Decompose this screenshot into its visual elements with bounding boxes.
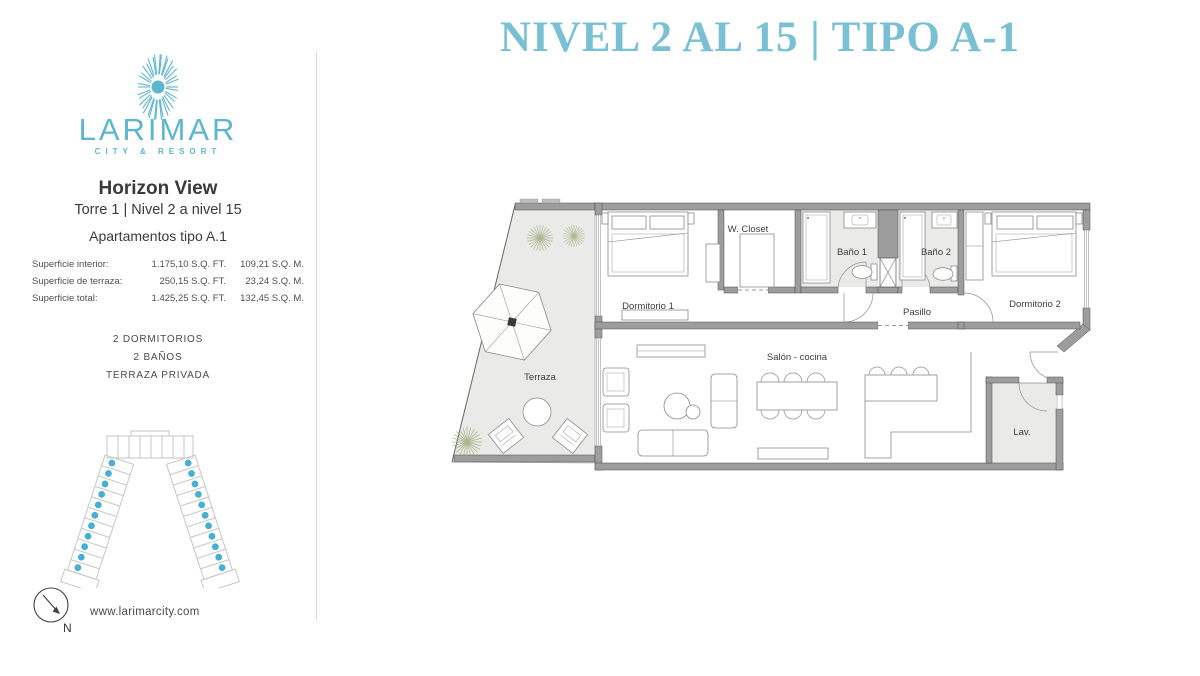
side-table-icon: [686, 405, 700, 419]
tower-levels: Torre 1 | Nivel 2 a nivel 15: [0, 202, 316, 218]
sink-icon: [932, 212, 957, 228]
area-label: Superficie interior:: [32, 259, 134, 270]
label-wcloset: W. Closet: [728, 224, 769, 235]
bridge-notch: [131, 431, 169, 436]
area-sqft: 250,15 S.Q. FT.: [134, 276, 226, 287]
armchair-icon: [603, 368, 629, 396]
unit-dots: [74, 459, 117, 572]
feature-bathrooms: 2 BAÑOS: [0, 349, 316, 367]
panel-divider: [316, 52, 317, 620]
pillow-icon: [997, 216, 1033, 229]
wcloset-furniture: [740, 234, 774, 287]
sofa-icon: [711, 374, 737, 428]
area-table: Superficie interior: 1.175,10 S.Q. FT. 1…: [32, 256, 304, 307]
label-pasillo: Pasillo: [903, 307, 931, 318]
nightstand-icon: [1076, 213, 1082, 224]
dining-table-icon: [757, 373, 837, 419]
kitchen-island-icon: [865, 367, 937, 401]
apartment-type: Apartamentos tipo A.1: [0, 228, 316, 244]
lav-floor: [992, 383, 1056, 463]
nightstand-icon: [688, 213, 694, 224]
area-sqft: 1.425,25 S.Q. FT.: [134, 293, 226, 304]
armchair-icon: [603, 404, 629, 432]
nightstand-icon: [985, 213, 991, 224]
page-title: NIVEL 2 AL 15 | TIPO A-1: [330, 13, 1190, 62]
plant-icon: [527, 225, 553, 251]
terrace: [452, 199, 595, 463]
feature-terrace: TERRAZA PRIVADA: [0, 367, 316, 385]
area-row-total: Superficie total: 1.425,25 S.Q. FT. 132,…: [32, 290, 304, 307]
wardrobe-icon: [740, 234, 774, 287]
label-dormitorio2: Dormitorio 2: [1009, 299, 1061, 310]
sun-center: [152, 81, 165, 94]
plant-icon: [563, 225, 585, 247]
area-row-terraza: Superficie de terraza: 250,15 S.Q. FT. 2…: [32, 273, 304, 290]
brochure-page: NIVEL 2 AL 15 | TIPO A-1: [0, 0, 1200, 676]
right-wing: [164, 454, 240, 588]
area-sqm: 23,24 S.Q. M.: [226, 276, 304, 287]
dormitorio2-furniture: [966, 212, 1082, 280]
area-label: Superficie total:: [32, 293, 134, 304]
area-sqft: 1.175,10 S.Q. FT.: [134, 259, 226, 270]
label-terraza: Terraza: [524, 372, 556, 383]
website-url: www.larimarcity.com: [90, 606, 200, 618]
feature-bedrooms: 2 DORMITORIOS: [0, 331, 316, 349]
shower-icon: [900, 212, 925, 280]
sideboard-icon: [758, 448, 828, 459]
label-dormitorio1: Dormitorio 1: [622, 301, 674, 312]
tower-footprint-icon: [35, 428, 265, 588]
feature-list: 2 DORMITORIOS 2 BAÑOS TERRAZA PRIVADA: [0, 331, 316, 385]
duct-shaft: [880, 258, 896, 287]
area-sqm: 109,21 S.Q. M.: [226, 259, 304, 270]
unit-dots: [184, 459, 227, 572]
area-sqm: 132,45 S.Q. M.: [226, 293, 304, 304]
nightstand-icon: [602, 213, 608, 224]
sink-icon: [844, 212, 876, 228]
pillow-icon: [650, 216, 684, 229]
label-bano2: Baño 2: [921, 247, 951, 258]
area-row-interior: Superficie interior: 1.175,10 S.Q. FT. 1…: [32, 256, 304, 273]
brand-tagline: CITY & RESORT: [0, 147, 316, 156]
coffee-table-icon: [664, 393, 690, 419]
terrace-table-icon: [523, 398, 551, 426]
shower-icon: [803, 212, 830, 283]
side-unit-icon: [706, 244, 720, 282]
left-wing: [61, 454, 137, 588]
north-label: N: [63, 621, 72, 635]
brand-wordmark: LARIMAR: [0, 112, 316, 148]
label-salon: Salón - cocina: [767, 352, 828, 363]
bridge: [107, 436, 193, 458]
plant-icon: [452, 427, 482, 457]
area-label: Superficie de terraza:: [32, 276, 134, 287]
label-bano1: Baño 1: [837, 247, 867, 258]
pillow-icon: [1037, 216, 1073, 229]
label-lav: Lav.: [1013, 427, 1030, 438]
pillow-icon: [612, 216, 646, 229]
project-name: Horizon View: [0, 178, 316, 200]
sofa-icon: [638, 430, 708, 456]
floorplan: Terraza Dormitorio 1 W. Closet Baño 1 Ba…: [440, 192, 1100, 477]
